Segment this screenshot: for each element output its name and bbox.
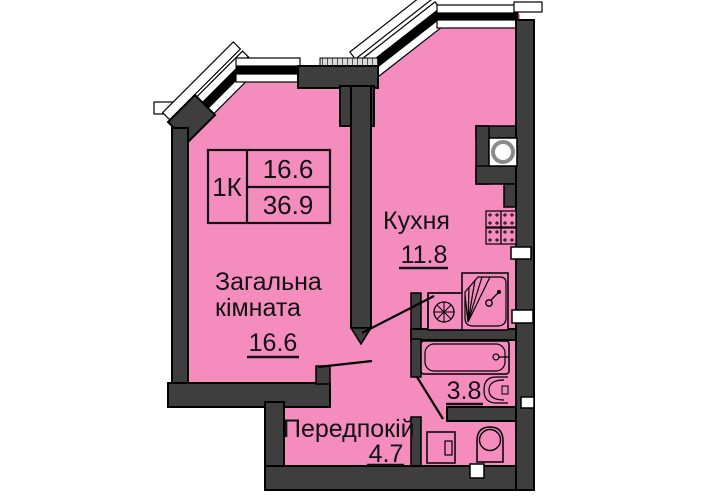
floor-plan: 1К 16.6 36.9 Загальна кімната 16.6 Кухня… [0,0,708,500]
wall-living-bottom [168,383,330,407]
wall-bath-divider [447,407,516,421]
vent-block-2 [512,310,533,323]
vent-block-4 [470,464,484,478]
wall-living-kitchen [351,86,371,328]
unit-living-area: 16.6 [263,154,314,184]
bathroom-area: 3.8 [447,377,482,405]
unit-total-area: 36.9 [263,190,314,220]
wall-bath-left-upper [411,339,421,377]
living-room-name-line1: Загальна [215,268,322,296]
hallway-name: Передпокій [283,415,415,443]
bathtub-icon [421,341,509,374]
wall-left [172,128,188,407]
bathroom-label: 3.8 [446,377,483,405]
living-top-window-band [236,58,300,82]
toilet-icon [477,427,503,462]
vent-block-3 [521,397,534,408]
sink-icon [489,138,517,166]
wall-bottom [265,466,534,490]
living-room-area: 16.6 [249,329,298,357]
stove-icon [486,211,516,244]
wall-top-living [298,66,378,88]
unit-type-label: 1К [212,172,242,202]
wall-door-stub [316,366,330,384]
living-room-name-line2: кімната [215,294,301,322]
floor-plan-svg: 1К 16.6 36.9 Загальна кімната 16.6 Кухня… [0,0,708,500]
window-sill-hatch [320,58,378,66]
kitchen-area: 11.8 [401,241,448,269]
washing-machine-icon [427,432,455,463]
vent-block-1 [511,247,531,259]
wall-kitchen-west [411,293,421,333]
kitchen-name: Кухня [383,207,450,235]
